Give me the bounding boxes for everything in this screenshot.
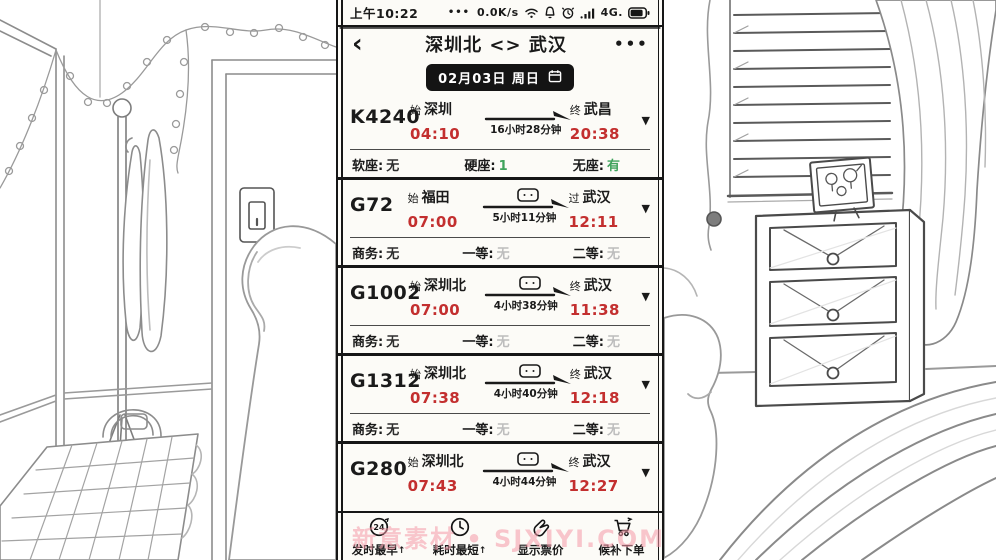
departure-station-time: 07:38	[410, 389, 482, 407]
train-code: K4240	[350, 99, 410, 128]
arrival-station-tag: 终	[570, 280, 581, 293]
seat-class-label: 一等:	[462, 335, 493, 350]
train-card-K4240[interactable]: K4240始深圳04:1016小时28分钟终武昌20:38▼软座:无硬座:1无座…	[338, 92, 662, 180]
hanging-clothes	[123, 130, 167, 352]
seat-class: 一等:无	[462, 243, 509, 262]
route-duration: 4小时40分钟	[482, 363, 570, 401]
date-picker-pill[interactable]: 02月03日 周日	[426, 64, 574, 91]
arrival-station-time: 11:38	[570, 301, 636, 319]
arrival-station-tag: 过	[568, 192, 579, 205]
route-title: 深圳北 <> 武汉	[378, 31, 614, 57]
train-code: G72	[350, 187, 408, 216]
toolbar-label: 候补下单	[599, 542, 645, 558]
departure-station-time: 04:10	[410, 125, 482, 143]
departure-station-tag: 始	[410, 280, 421, 293]
arrival-station: 终武汉11:38	[570, 275, 636, 319]
baseboard	[0, 383, 212, 422]
duration-label: 16小时28分钟	[482, 122, 570, 137]
departure-station-tag: 始	[408, 456, 419, 469]
arrival-station-tag: 终	[570, 104, 581, 117]
departure-station-name: 深圳北	[424, 278, 466, 294]
duration-label: 4小时44分钟	[480, 474, 568, 489]
hand-drawn-room-scene: 上午10:22 ••• 0.0K/s 4G. ‹ 深圳北 <> 武汉 ••• 0…	[0, 0, 996, 560]
route-arrow-icon	[482, 364, 574, 388]
seat-availability-value: 无	[607, 423, 620, 438]
seat-availability-value: 无	[386, 423, 399, 438]
calendar-icon	[548, 69, 562, 87]
route-arrow-icon	[482, 100, 574, 124]
seat-class: 商务:无	[352, 331, 399, 350]
string-lights-icon	[0, 24, 336, 189]
status-time: 上午10:22	[350, 3, 418, 22]
arrival-station-tag: 终	[570, 368, 581, 381]
train-code: G1312	[350, 363, 410, 392]
train-list: K4240始深圳04:1016小时28分钟终武昌20:38▼软座:无硬座:1无座…	[338, 92, 662, 560]
app-header: ‹ 深圳北 <> 武汉 •••	[338, 27, 662, 61]
hand-price-icon	[530, 516, 552, 541]
expand-caret-icon[interactable]: ▼	[636, 451, 650, 479]
seat-class: 二等:无	[573, 331, 620, 350]
seat-class: 商务:无	[352, 243, 399, 262]
departure-station-tag: 始	[410, 104, 421, 117]
expand-caret-icon[interactable]: ▼	[636, 187, 650, 215]
seat-class-label: 商务:	[352, 335, 383, 350]
seat-class: 商务:无	[352, 419, 399, 438]
toolbar-clock-button[interactable]: 耗时最短↑	[419, 513, 500, 560]
seat-class-label: 商务:	[352, 247, 383, 262]
dresser-with-drawers	[756, 210, 924, 406]
train-card-G72[interactable]: G72始福田07:005小时11分钟过武汉12:11▼商务:无一等:无二等:无	[338, 180, 662, 268]
arrival-station: 终武昌20:38	[570, 99, 636, 143]
train-code: G1002	[350, 275, 410, 304]
arrival-station-name: 武汉	[582, 454, 610, 470]
departure-station: 始深圳北07:38	[410, 363, 482, 407]
departure-station-tag: 始	[408, 192, 419, 205]
seat-availability-value: 无	[497, 335, 510, 350]
clock-icon	[449, 516, 471, 541]
departure-station-tag: 始	[410, 368, 421, 381]
departure-station-name: 深圳	[424, 102, 452, 118]
seat-availability-value: 无	[497, 247, 510, 262]
date-bar: 02月03日 周日	[338, 61, 662, 96]
duration-label: 4小时40分钟	[482, 386, 570, 401]
arrival-station-name: 武汉	[584, 278, 612, 294]
toolbar-label: 耗时最短↑	[433, 542, 487, 558]
departure-station: 始福田07:00	[408, 187, 481, 231]
seat-class-label: 硬座:	[464, 159, 495, 174]
seat-class-label: 二等:	[573, 423, 604, 438]
departure-station: 始深圳04:10	[410, 99, 482, 143]
arrival-station-name: 武汉	[582, 190, 610, 206]
seat-class-label: 一等:	[462, 423, 493, 438]
toolbar-label: 发时最早↑	[352, 542, 406, 558]
seat-class-label: 二等:	[573, 247, 604, 262]
arrival-station-time: 20:38	[570, 125, 636, 143]
seat-availability-value: 无	[386, 335, 399, 350]
seat-class-label: 一等:	[462, 247, 493, 262]
status-bar: 上午10:22 ••• 0.0K/s 4G.	[338, 0, 662, 27]
toolbar-hand-price-button[interactable]: 显示票价	[500, 513, 581, 560]
arrival-station: 终武汉12:18	[570, 363, 636, 407]
seat-class-label: 软座:	[352, 159, 383, 174]
alarm-clock-icon	[561, 6, 575, 19]
seat-class-label: 无座:	[573, 159, 604, 174]
seat-class: 软座:无	[352, 155, 399, 174]
route-duration: 4小时38分钟	[482, 275, 570, 313]
sort-24-icon: 24	[368, 516, 390, 541]
seat-availability-row: 商务:无一等:无二等:无	[350, 237, 650, 262]
arrival-station: 过武汉12:11	[568, 187, 635, 231]
seat-class-label: 商务:	[352, 423, 383, 438]
seat-availability-value: 1	[499, 159, 508, 174]
departure-station-name: 深圳北	[424, 366, 466, 382]
seat-availability-row: 软座:无硬座:1无座:有	[350, 149, 650, 174]
left-room-sketch	[0, 0, 336, 560]
seat-availability-value: 无	[386, 247, 399, 262]
departure-station-time: 07:43	[408, 477, 481, 495]
route-arrow-icon	[482, 276, 574, 300]
date-label: 02月03日 周日	[438, 68, 540, 87]
wifi-icon	[524, 6, 539, 19]
sort-marker-icon: ↑	[398, 546, 406, 556]
departure-station: 始深圳北07:00	[410, 275, 482, 319]
duration-label: 5小时11分钟	[480, 210, 568, 225]
seat-availability-value: 无	[607, 335, 620, 350]
train-card-G1312[interactable]: G1312始深圳北07:384小时40分钟终武汉12:18▼商务:无一等:无二等…	[338, 356, 662, 444]
checkered-table	[0, 434, 201, 560]
toolbar-sort-24-button[interactable]: 24发时最早↑	[338, 513, 419, 560]
seat-availability-row: 商务:无一等:无二等:无	[350, 413, 650, 438]
seat-availability-value: 有	[607, 159, 620, 174]
arrival-station: 终武汉12:27	[568, 451, 635, 495]
battery-icon	[628, 7, 650, 19]
arrival-station-name: 武昌	[584, 102, 612, 118]
departure-station-name: 福田	[422, 190, 450, 206]
cord-bead	[707, 212, 721, 226]
expand-caret-icon[interactable]: ▼	[636, 99, 650, 127]
bottom-toolbar: 24发时最早↑耗时最短↑显示票价候补下单	[338, 511, 662, 560]
route-arrow-icon	[480, 452, 572, 476]
seat-class: 无座:有	[573, 155, 620, 174]
toolbar-cart-button[interactable]: 候补下单	[581, 513, 662, 560]
departure-station-time: 07:00	[410, 301, 482, 319]
seat-availability-value: 无	[497, 423, 510, 438]
seat-availability-value: 无	[386, 159, 399, 174]
seat-availability-row: 商务:无一等:无二等:无	[350, 325, 650, 350]
seat-class: 一等:无	[462, 331, 509, 350]
train-code: G280	[350, 451, 408, 480]
pillow-edge	[664, 268, 697, 296]
net-speed: 0.0K/s	[477, 6, 519, 19]
bell-icon	[544, 6, 556, 19]
route-duration: 5小时11分钟	[480, 187, 568, 225]
right-room-sketch	[664, 0, 996, 560]
route-duration: 16小时28分钟	[482, 99, 570, 137]
expand-caret-icon[interactable]: ▼	[636, 275, 650, 303]
seat-class: 二等:无	[573, 419, 620, 438]
back-button[interactable]: ‹	[352, 31, 378, 57]
svg-text:24: 24	[373, 523, 385, 532]
network-label: 4G.	[601, 6, 623, 19]
seat-availability-value: 无	[607, 247, 620, 262]
notification-dots-icon: •••	[448, 7, 470, 18]
more-menu-button[interactable]: •••	[614, 35, 648, 53]
departure-station: 始深圳北07:43	[408, 451, 481, 495]
arrival-station-time: 12:11	[568, 213, 635, 231]
seat-class: 二等:无	[573, 243, 620, 262]
train-card-G1002[interactable]: G1002始深圳北07:004小时38分钟终武汉11:38▼商务:无一等:无二等…	[338, 268, 662, 356]
route-arrow-icon	[480, 188, 572, 212]
departure-station-name: 深圳北	[422, 454, 464, 470]
arrival-station-name: 武汉	[584, 366, 612, 382]
bed-blanket	[720, 382, 996, 560]
sort-marker-icon: ↑	[479, 546, 487, 556]
toolbar-label: 显示票价	[518, 542, 564, 558]
seat-class: 一等:无	[462, 419, 509, 438]
duration-label: 4小时38分钟	[482, 298, 570, 313]
signal-bars-icon	[580, 7, 596, 19]
seat-class: 硬座:1	[464, 155, 507, 174]
route-duration: 4小时44分钟	[480, 451, 568, 489]
arrival-station-time: 12:27	[568, 477, 635, 495]
arrival-station-tag: 终	[568, 456, 579, 469]
cart-icon	[611, 516, 633, 541]
thumb-finger	[664, 315, 721, 558]
expand-caret-icon[interactable]: ▼	[636, 363, 650, 391]
departure-station-time: 07:00	[408, 213, 481, 231]
arrival-station-time: 12:18	[570, 389, 636, 407]
reaching-finger	[229, 226, 336, 560]
phone-screen: 上午10:22 ••• 0.0K/s 4G. ‹ 深圳北 <> 武汉 ••• 0…	[336, 0, 664, 560]
seat-class-label: 二等:	[573, 335, 604, 350]
